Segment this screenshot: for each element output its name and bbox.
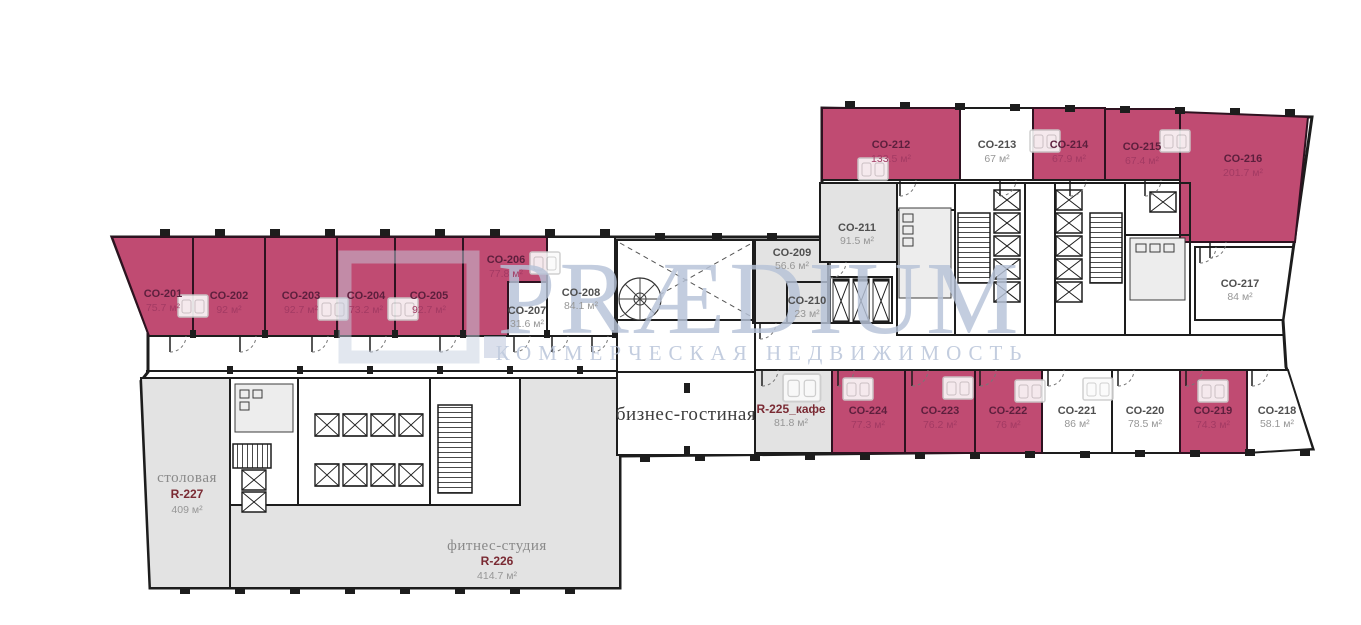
zone-canteen-id: R-227: [171, 487, 204, 501]
zone-cafe-id: R-225_кафе: [756, 402, 825, 416]
floor-plan-page: PRÆDIUM КОММЕРЧЕСКАЯ НЕДВИЖИМОСТЬ CO-201…: [0, 0, 1361, 625]
brand-watermark-tagline: КОММЕРЧЕСКАЯ НЕДВИЖИМОСТЬ: [496, 341, 1029, 365]
room-co-221-id: CO-221: [1058, 405, 1097, 417]
room-co-209-id: CO-209: [773, 247, 812, 259]
room-co-212-area: 133.5 м²: [871, 153, 911, 165]
room-co-218-area: 58.1 м²: [1260, 418, 1295, 430]
room-co-218-id: CO-218: [1258, 405, 1297, 417]
room-co-203-area: 92.7 м²: [284, 304, 319, 316]
room-co-204-area: 73.2 м²: [349, 304, 384, 316]
zone-fitness-id: R-226: [481, 554, 514, 568]
room-co-206-id: CO-206: [487, 254, 526, 266]
room-co-202-id: CO-202: [210, 290, 249, 302]
wc-icon: [843, 378, 873, 400]
room-co-222-id: CO-222: [989, 405, 1028, 417]
wc-icon: [1015, 380, 1045, 402]
room-co-203-shape[interactable]: [265, 237, 337, 336]
room-co-212-id: CO-212: [872, 139, 911, 151]
room-co-211-area: 91.5 м²: [840, 235, 875, 247]
room-co-201-id: CO-201: [144, 288, 183, 300]
stairwell-c: [233, 444, 271, 468]
stairwell-d: [438, 405, 472, 493]
room-co-213-area: 67 м²: [984, 153, 1010, 165]
wc-icon: [1160, 130, 1190, 152]
room-co-202-area: 92 м²: [216, 304, 242, 316]
zone-canteen-area: 409 м²: [171, 504, 203, 516]
wc-icon: [1083, 378, 1113, 400]
room-co-214-area: 67.9 м²: [1052, 153, 1087, 165]
wc-block: [235, 384, 293, 432]
room-co-224-id: CO-224: [849, 405, 888, 417]
room-co-220-id: CO-220: [1126, 405, 1165, 417]
room-co-219-area: 74.3 м²: [1196, 419, 1231, 431]
room-co-221-area: 86 м²: [1064, 418, 1090, 430]
room-co-201-shape[interactable]: [112, 237, 193, 336]
room-co-223-id: CO-223: [921, 405, 960, 417]
room-co-209-area: 56.6 м²: [775, 260, 810, 272]
room-co-222-area: 76 м²: [995, 419, 1021, 431]
zone-fitness-label: фитнес-студия: [447, 538, 547, 554]
room-co-208-id: CO-208: [562, 287, 601, 299]
room-co-215-area: 67.4 м²: [1125, 155, 1160, 167]
room-co-210-area: 23 м²: [794, 308, 820, 320]
room-co-217-area: 84 м²: [1227, 291, 1253, 303]
room-co-208-area: 84.1 м²: [564, 300, 599, 312]
zone-fitness-area: 414.7 м²: [477, 570, 517, 582]
zone-canteen-label: столовая: [157, 470, 217, 486]
room-co-224-area: 77.3 м²: [851, 419, 886, 431]
room-co-203-id: CO-203: [282, 290, 321, 302]
wc-icon: [783, 374, 821, 402]
room-co-204-id: CO-204: [347, 290, 386, 302]
zone-business-lounge-label: бизнес-гостиная: [616, 404, 756, 425]
room-co-213-id: CO-213: [978, 139, 1017, 151]
room-co-219-id: CO-219: [1194, 405, 1233, 417]
room-co-216-id: CO-216: [1224, 153, 1263, 165]
room-co-215-id: CO-215: [1123, 141, 1162, 153]
room-co-201-area: 75.7 м²: [146, 302, 181, 314]
wc-icon: [178, 295, 208, 317]
room-co-207-area: 31.6 м²: [510, 318, 545, 330]
room-co-220-area: 78.5 м²: [1128, 418, 1163, 430]
room-co-223-area: 76.2 м²: [923, 419, 958, 431]
wc-icon: [1198, 380, 1228, 402]
room-co-202-shape[interactable]: [193, 237, 265, 336]
room-co-210-id: CO-210: [788, 295, 827, 307]
room-co-205-area: 92.7 м²: [412, 304, 447, 316]
room-co-206-area: 77.8 м²: [489, 268, 524, 280]
stairwell-b: [1090, 213, 1122, 283]
room-co-217-id: CO-217: [1221, 278, 1260, 290]
zone-cafe-area: 81.8 м²: [774, 417, 809, 429]
wc-block-right: [1130, 238, 1185, 300]
room-co-207-id: CO-207: [508, 305, 547, 317]
room-co-211-id: CO-211: [838, 222, 876, 234]
room-co-205-id: CO-205: [410, 290, 449, 302]
wc-icon: [943, 377, 973, 399]
room-co-216-area: 201.7 м²: [1223, 167, 1263, 179]
room-co-214-id: CO-214: [1050, 139, 1089, 151]
floor-plan: PRÆDIUM КОММЕРЧЕСКАЯ НЕДВИЖИМОСТЬ CO-201…: [0, 0, 1361, 625]
